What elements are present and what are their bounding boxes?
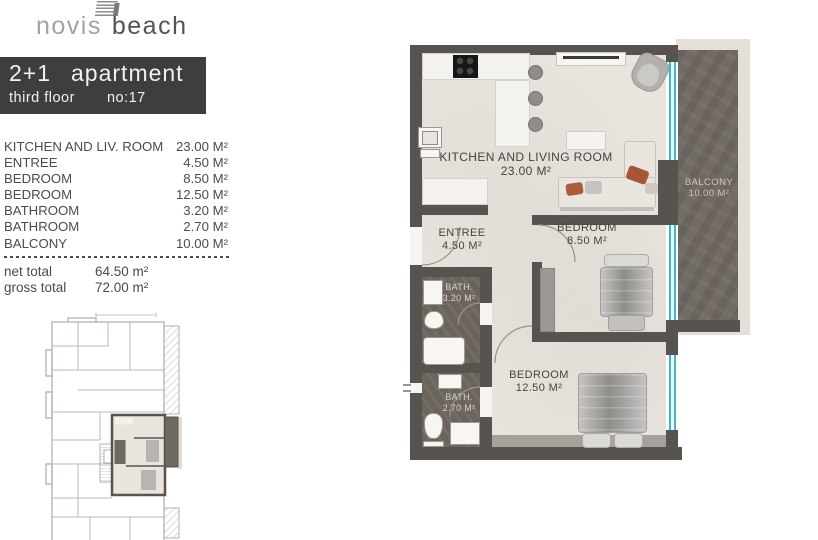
- room-area: 2.70 M²: [183, 219, 228, 235]
- room-label: BALCONY: [678, 177, 740, 188]
- totals: net total64.50 m² gross total72.00 m²: [4, 264, 228, 296]
- utility-shaft: [422, 178, 488, 205]
- sofa-pillow: [565, 182, 584, 196]
- wall-bath2-right: [480, 373, 492, 387]
- gross-total-value: 72.00 m²: [95, 280, 148, 296]
- mini-highlighted-unit: [112, 415, 182, 495]
- unit-number: no:17: [107, 90, 146, 106]
- room-label: BATH.: [426, 392, 492, 403]
- apartment-title-box: 2+1apartment third floorno:17: [0, 57, 206, 114]
- list-item: BEDROOM8.50 M²: [4, 171, 228, 187]
- mini-balcony-hatch-bottom: [164, 508, 179, 538]
- room-label: BATH.: [426, 282, 492, 293]
- kitchen-sink: [418, 127, 442, 148]
- room-label: ENTREE: [418, 227, 506, 240]
- brand-name-bold: beach: [112, 12, 188, 40]
- room-name: BALCONY: [4, 236, 67, 252]
- coffee-table: [566, 131, 606, 150]
- sofa-pillow: [645, 183, 658, 194]
- main-floor-plan: KITCHEN AND LIVING ROOM 23.00 M² ENTREE …: [408, 37, 756, 467]
- label-entree: ENTREE 4.50 M²: [418, 227, 506, 253]
- net-total-label: net total: [4, 264, 95, 280]
- label-bedroom1: BEDROOM 8.50 M²: [542, 222, 632, 248]
- bar-stool: [528, 117, 543, 132]
- room-area: 4.50 M²: [183, 155, 228, 171]
- apartment-location: third floorno:17: [9, 90, 146, 106]
- sofa-base: [560, 208, 654, 211]
- room-area: 12.50 M²: [176, 187, 228, 203]
- gross-total-label: gross total: [4, 280, 95, 296]
- vent-gap: [410, 383, 422, 393]
- bar-stool: [528, 91, 543, 106]
- room-area-label: 2.70 M²: [426, 403, 492, 414]
- apartment-kind: apartment: [71, 60, 184, 86]
- label-balcony: BALCONY 10.00 M²: [678, 177, 740, 200]
- room-area-label: 4.50 M²: [418, 240, 506, 253]
- bath1-tub: [423, 337, 465, 365]
- label-bedroom2: BEDROOM 12.50 M²: [496, 369, 582, 395]
- bath2-sink: [438, 374, 462, 389]
- brand-name: novisbeach: [36, 12, 188, 41]
- room-area-label: 23.00 M²: [436, 164, 616, 178]
- list-item: BEDROOM12.50 M²: [4, 187, 228, 203]
- window-living-room: [666, 62, 678, 160]
- apartment-type: 2+1apartment: [9, 60, 184, 87]
- bath2-toilet: [424, 413, 443, 439]
- window-bedroom1: [666, 218, 678, 320]
- list-item: BATHROOM2.70 M²: [4, 219, 228, 235]
- list-item: ENTREE4.50 M²: [4, 155, 228, 171]
- mini-dimension-line: [96, 313, 156, 318]
- wall-shaft-bottom: [422, 205, 488, 215]
- room-name: KITCHEN AND LIV. ROOM: [4, 139, 163, 155]
- balcony-bottom-wall: [678, 320, 740, 332]
- bed-single: [600, 252, 653, 333]
- mini-floor-plan: [38, 312, 218, 540]
- room-area: 23.00 M²: [176, 139, 228, 155]
- room-area-list: KITCHEN AND LIV. ROOM23.00 M² ENTREE4.50…: [4, 139, 228, 296]
- bath1-toilet: [424, 311, 444, 329]
- room-area: 10.00 M²: [176, 236, 228, 252]
- room-area-label: 10.00 M²: [678, 188, 740, 199]
- bedroom1-wardrobe: [540, 268, 555, 332]
- floor-label: third floor: [9, 90, 75, 106]
- brand-name-light: novis: [36, 12, 102, 40]
- wall-left: [410, 393, 422, 453]
- wall-bedroom1-bedroom2: [532, 332, 678, 342]
- room-area: 8.50 M²: [183, 171, 228, 187]
- wall-bath2-right: [480, 417, 492, 447]
- wall-right: [666, 45, 678, 62]
- kitchen-counter-island: [495, 80, 530, 147]
- room-area-label: 8.50 M²: [542, 235, 632, 248]
- vent-tick: [403, 384, 411, 386]
- label-bath1: BATH. 3.20 M²: [426, 282, 492, 304]
- room-name: BEDROOM: [4, 187, 72, 203]
- floorplan-page: novisbeach 2+1apartment third floorno:17…: [0, 0, 818, 540]
- label-living-room: KITCHEN AND LIVING ROOM 23.00 M²: [436, 150, 616, 179]
- tv-console: [556, 52, 626, 66]
- room-area-label: 12.50 M²: [496, 382, 582, 395]
- vent-tick: [403, 390, 411, 392]
- bath2-cabinet: [423, 441, 444, 447]
- room-name: ENTREE: [4, 155, 58, 171]
- room-name: BATHROOM: [4, 203, 79, 219]
- room-area: 3.20 M²: [183, 203, 228, 219]
- bar-stool: [528, 65, 543, 80]
- bed-double: [578, 373, 647, 450]
- bath1-door-gap: [480, 303, 492, 325]
- stove: [453, 55, 478, 78]
- net-total-value: 64.50 m²: [95, 264, 148, 280]
- room-name: BATHROOM: [4, 219, 79, 235]
- label-bath2: BATH. 2.70 M²: [426, 392, 492, 414]
- room-name: BEDROOM: [4, 171, 72, 187]
- net-total-row: net total64.50 m²: [4, 264, 228, 280]
- gross-total-row: gross total72.00 m²: [4, 280, 228, 296]
- room-label: BEDROOM: [496, 369, 582, 382]
- dashed-divider: [4, 256, 230, 258]
- room-label: BEDROOM: [542, 222, 632, 235]
- bath2-shower: [450, 422, 480, 445]
- wall-right-block: [658, 160, 678, 218]
- wall-right: [666, 430, 678, 447]
- window-bedroom2: [666, 355, 678, 430]
- mini-balcony-hatch-top: [164, 326, 179, 414]
- list-item: KITCHEN AND LIV. ROOM23.00 M²: [4, 139, 228, 155]
- sofa-pillow: [585, 181, 602, 194]
- list-item: BATHROOM3.20 M²: [4, 203, 228, 219]
- list-item: BALCONY10.00 M²: [4, 236, 228, 252]
- room-label: KITCHEN AND LIVING ROOM: [436, 150, 616, 164]
- room-area-label: 3.20 M²: [426, 293, 492, 304]
- apartment-size: 2+1: [9, 60, 51, 86]
